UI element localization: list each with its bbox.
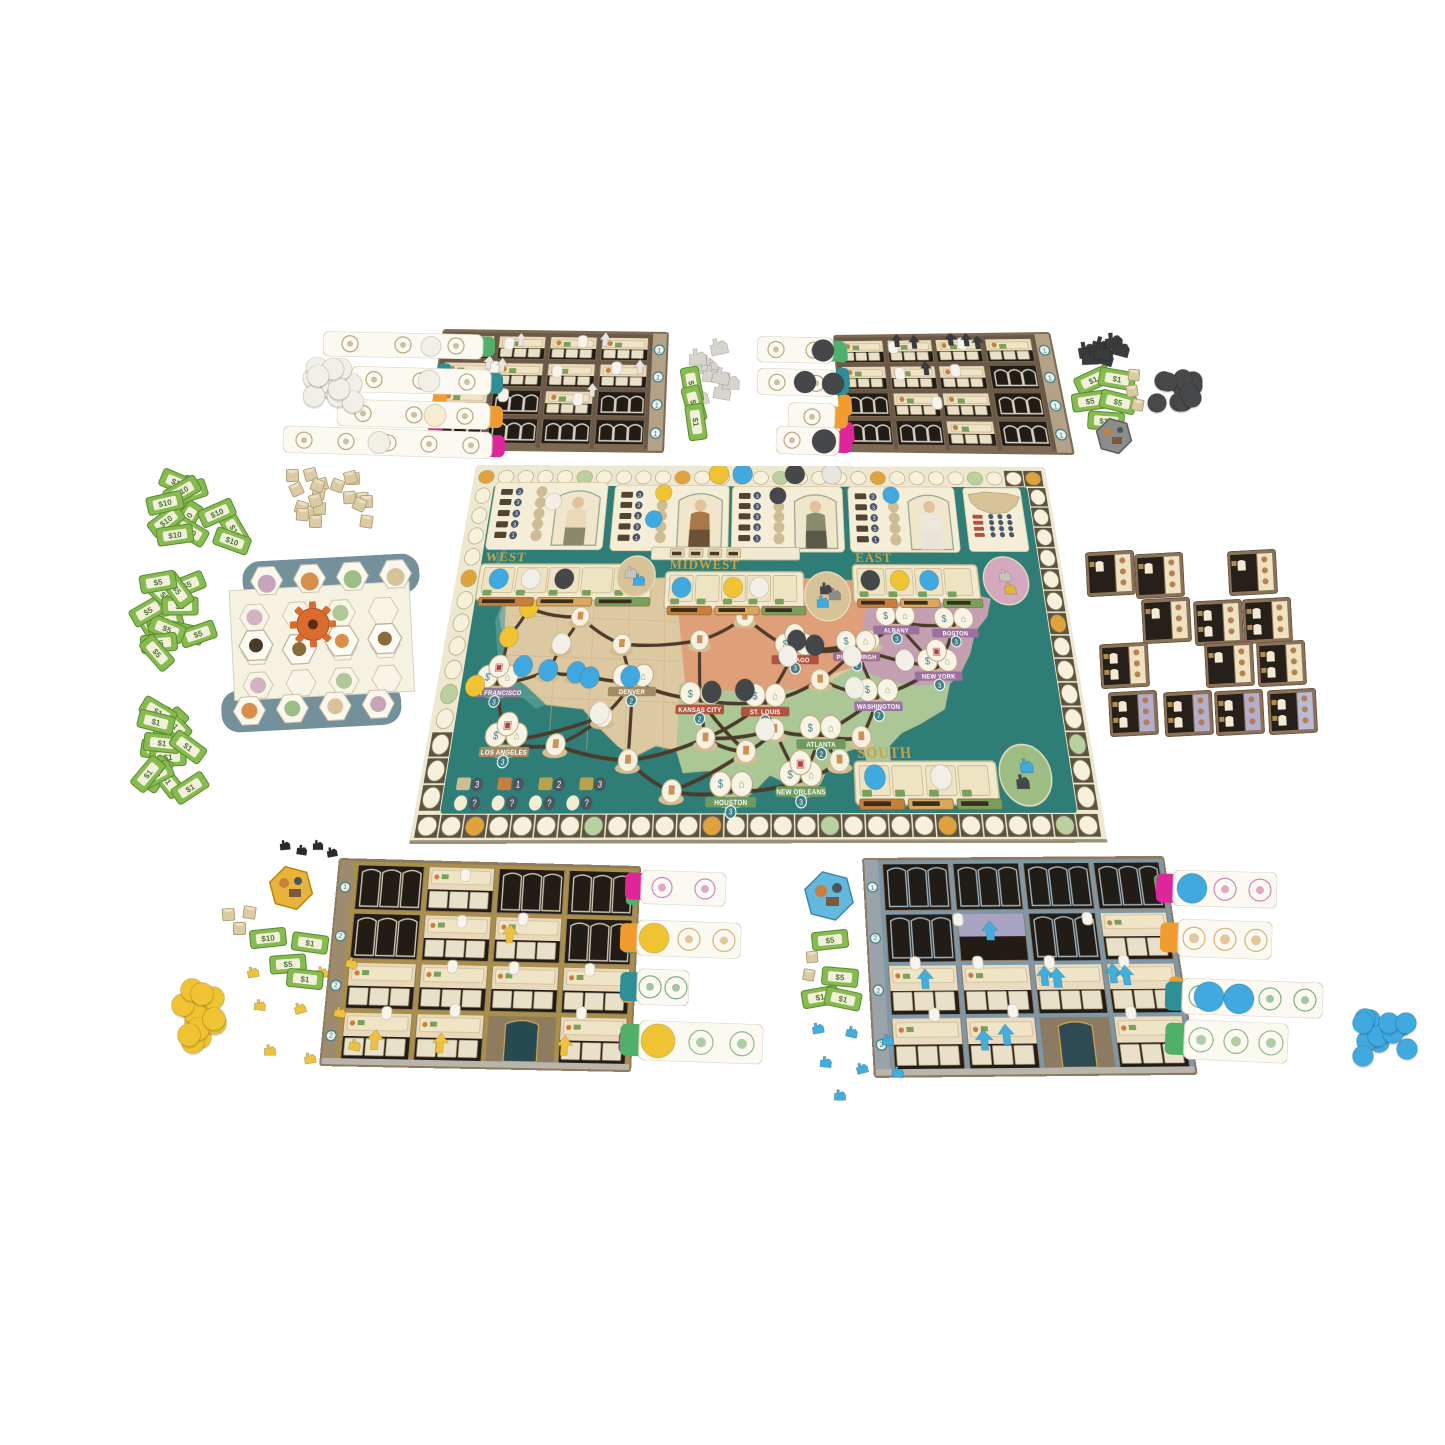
svg-text:⌂: ⌂ [960, 613, 967, 624]
svg-text:2: 2 [697, 716, 701, 724]
svg-text:3: 3 [938, 682, 942, 690]
svg-text:$1: $1 [300, 975, 310, 985]
svg-text:▣: ▣ [494, 661, 504, 673]
svg-text:⌂: ⌂ [828, 722, 834, 735]
svg-text:3: 3 [954, 639, 958, 647]
svg-text:3: 3 [799, 799, 803, 808]
svg-text:$1: $1 [157, 739, 167, 749]
svg-text:1: 1 [656, 375, 661, 382]
svg-text:1: 1 [657, 348, 662, 355]
svg-text:2: 2 [629, 698, 633, 706]
svg-text:$1: $1 [690, 417, 700, 428]
svg-text:1: 1 [755, 536, 758, 543]
svg-text:3: 3 [793, 665, 797, 673]
svg-text:2: 2 [819, 751, 823, 760]
svg-text:$5: $5 [835, 973, 845, 983]
svg-text:▣: ▣ [796, 757, 805, 770]
svg-text:3: 3 [871, 494, 875, 501]
svg-text:EAST: EAST [855, 551, 893, 565]
svg-text:WEST: WEST [484, 551, 527, 565]
svg-text:⌂: ⌂ [739, 777, 745, 791]
svg-text:3: 3 [872, 505, 876, 512]
svg-text:⌂: ⌂ [884, 684, 890, 696]
svg-text:⌂: ⌂ [863, 635, 869, 647]
svg-text:⌂: ⌂ [640, 670, 646, 682]
svg-text:$10: $10 [261, 933, 276, 943]
svg-text:⌂: ⌂ [773, 690, 779, 702]
svg-text:1: 1 [655, 402, 660, 410]
svg-text:$5: $5 [825, 935, 835, 945]
svg-text:$10: $10 [168, 530, 183, 541]
svg-text:SOUTH: SOUTH [857, 745, 913, 763]
svg-text:3: 3 [756, 494, 759, 501]
svg-text:2: 2 [877, 712, 881, 720]
svg-text:3: 3 [756, 504, 759, 511]
svg-text:3: 3 [895, 636, 899, 644]
svg-text:3: 3 [756, 514, 759, 521]
svg-text:$5: $5 [1085, 396, 1096, 406]
svg-text:▣: ▣ [502, 718, 513, 731]
svg-text:⌂: ⌂ [902, 610, 908, 621]
svg-text:3: 3 [755, 525, 758, 532]
svg-text:3: 3 [729, 808, 733, 817]
svg-text:▣: ▣ [932, 645, 942, 657]
svg-text:$1: $1 [305, 938, 316, 948]
